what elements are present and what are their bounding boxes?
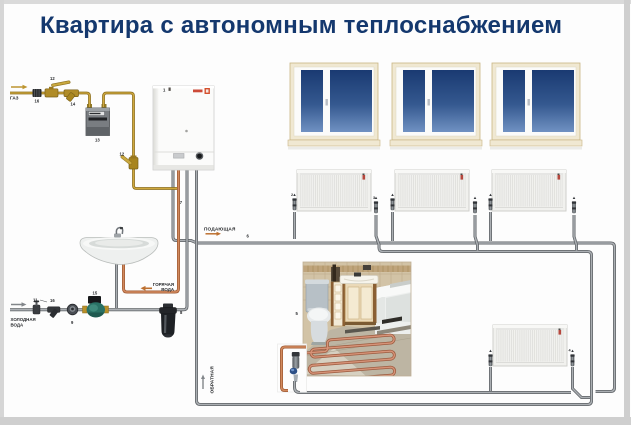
svg-text:14: 14 [71, 102, 76, 107]
svg-text:11: 11 [33, 298, 38, 303]
svg-text:3: 3 [373, 196, 375, 200]
svg-text:ГАЗ: ГАЗ [10, 96, 19, 101]
svg-text:16: 16 [50, 298, 55, 303]
svg-text:15: 15 [93, 291, 98, 296]
svg-text:16: 16 [35, 99, 40, 104]
svg-text:12: 12 [120, 152, 125, 157]
svg-text:12: 12 [50, 76, 55, 81]
svg-text:ВОДА: ВОДА [11, 323, 25, 328]
svg-text:2: 2 [291, 193, 293, 197]
svg-text:ПОДАЮЩАЯ: ПОДАЮЩАЯ [204, 227, 236, 232]
svg-text:ОБРАТНАЯ: ОБРАТНАЯ [210, 366, 215, 394]
svg-text:13: 13 [95, 138, 100, 143]
svg-text:ВОДА: ВОДА [161, 287, 175, 292]
svg-text:ХОЛОДНАЯ: ХОЛОДНАЯ [11, 317, 36, 322]
svg-text:Квартира с автономным теплосна: Квартира с автономным теплоснабжением [40, 12, 562, 39]
